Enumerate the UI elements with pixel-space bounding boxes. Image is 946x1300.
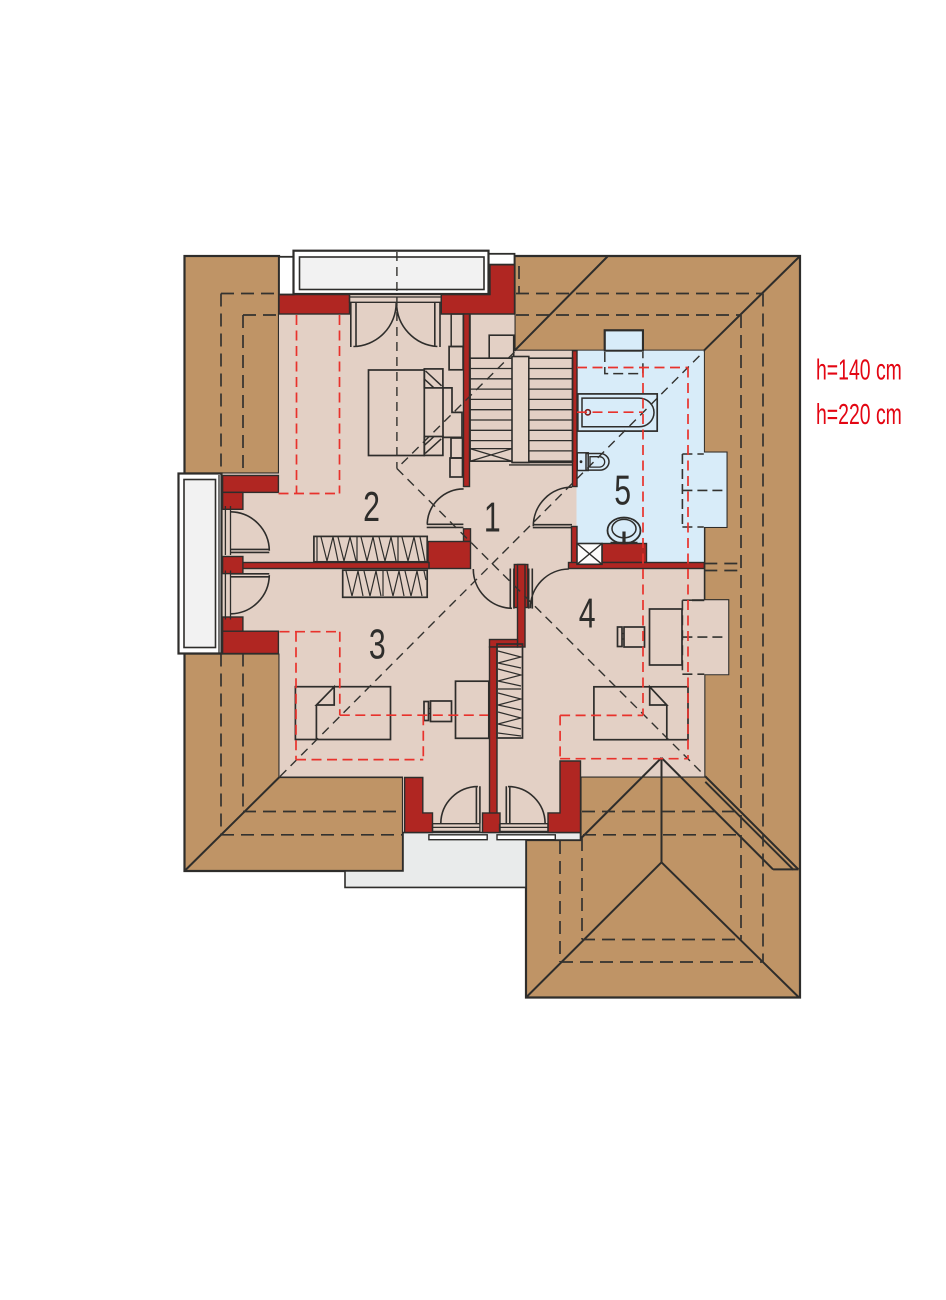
svg-text:5: 5 — [614, 467, 631, 514]
svg-text:h=140 cm: h=140 cm — [816, 355, 902, 387]
svg-text:h=220 cm: h=220 cm — [816, 399, 902, 431]
svg-text:2: 2 — [363, 483, 380, 530]
svg-text:1: 1 — [484, 494, 501, 541]
svg-text:3: 3 — [369, 621, 386, 668]
svg-text:4: 4 — [579, 590, 596, 637]
